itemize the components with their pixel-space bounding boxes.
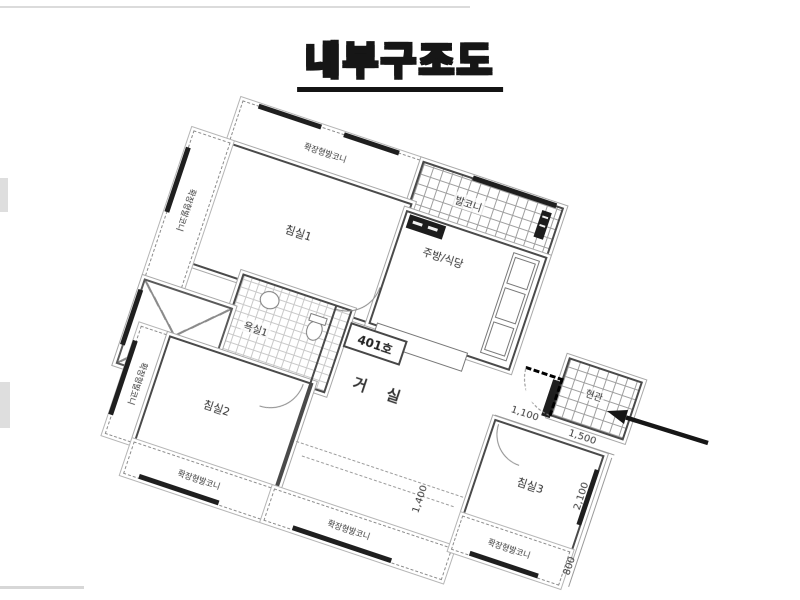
entrance-arrow-icon xyxy=(596,398,714,456)
page-title: 내부구조도 xyxy=(297,30,503,92)
floor-plan: 확장형발코니 발코니 침실1 확장형발코니 주방/식당 욕실1 xyxy=(70,86,731,600)
scanned-floorplan-page: { "page": { "title": "내부구조도" }, "plan": … xyxy=(0,0,800,600)
scan-artifact-bottom-line xyxy=(0,586,84,589)
scan-artifact-top-line xyxy=(0,6,470,8)
scan-artifact-left-mark xyxy=(0,178,8,212)
scan-artifact-left-mark2 xyxy=(0,382,10,428)
